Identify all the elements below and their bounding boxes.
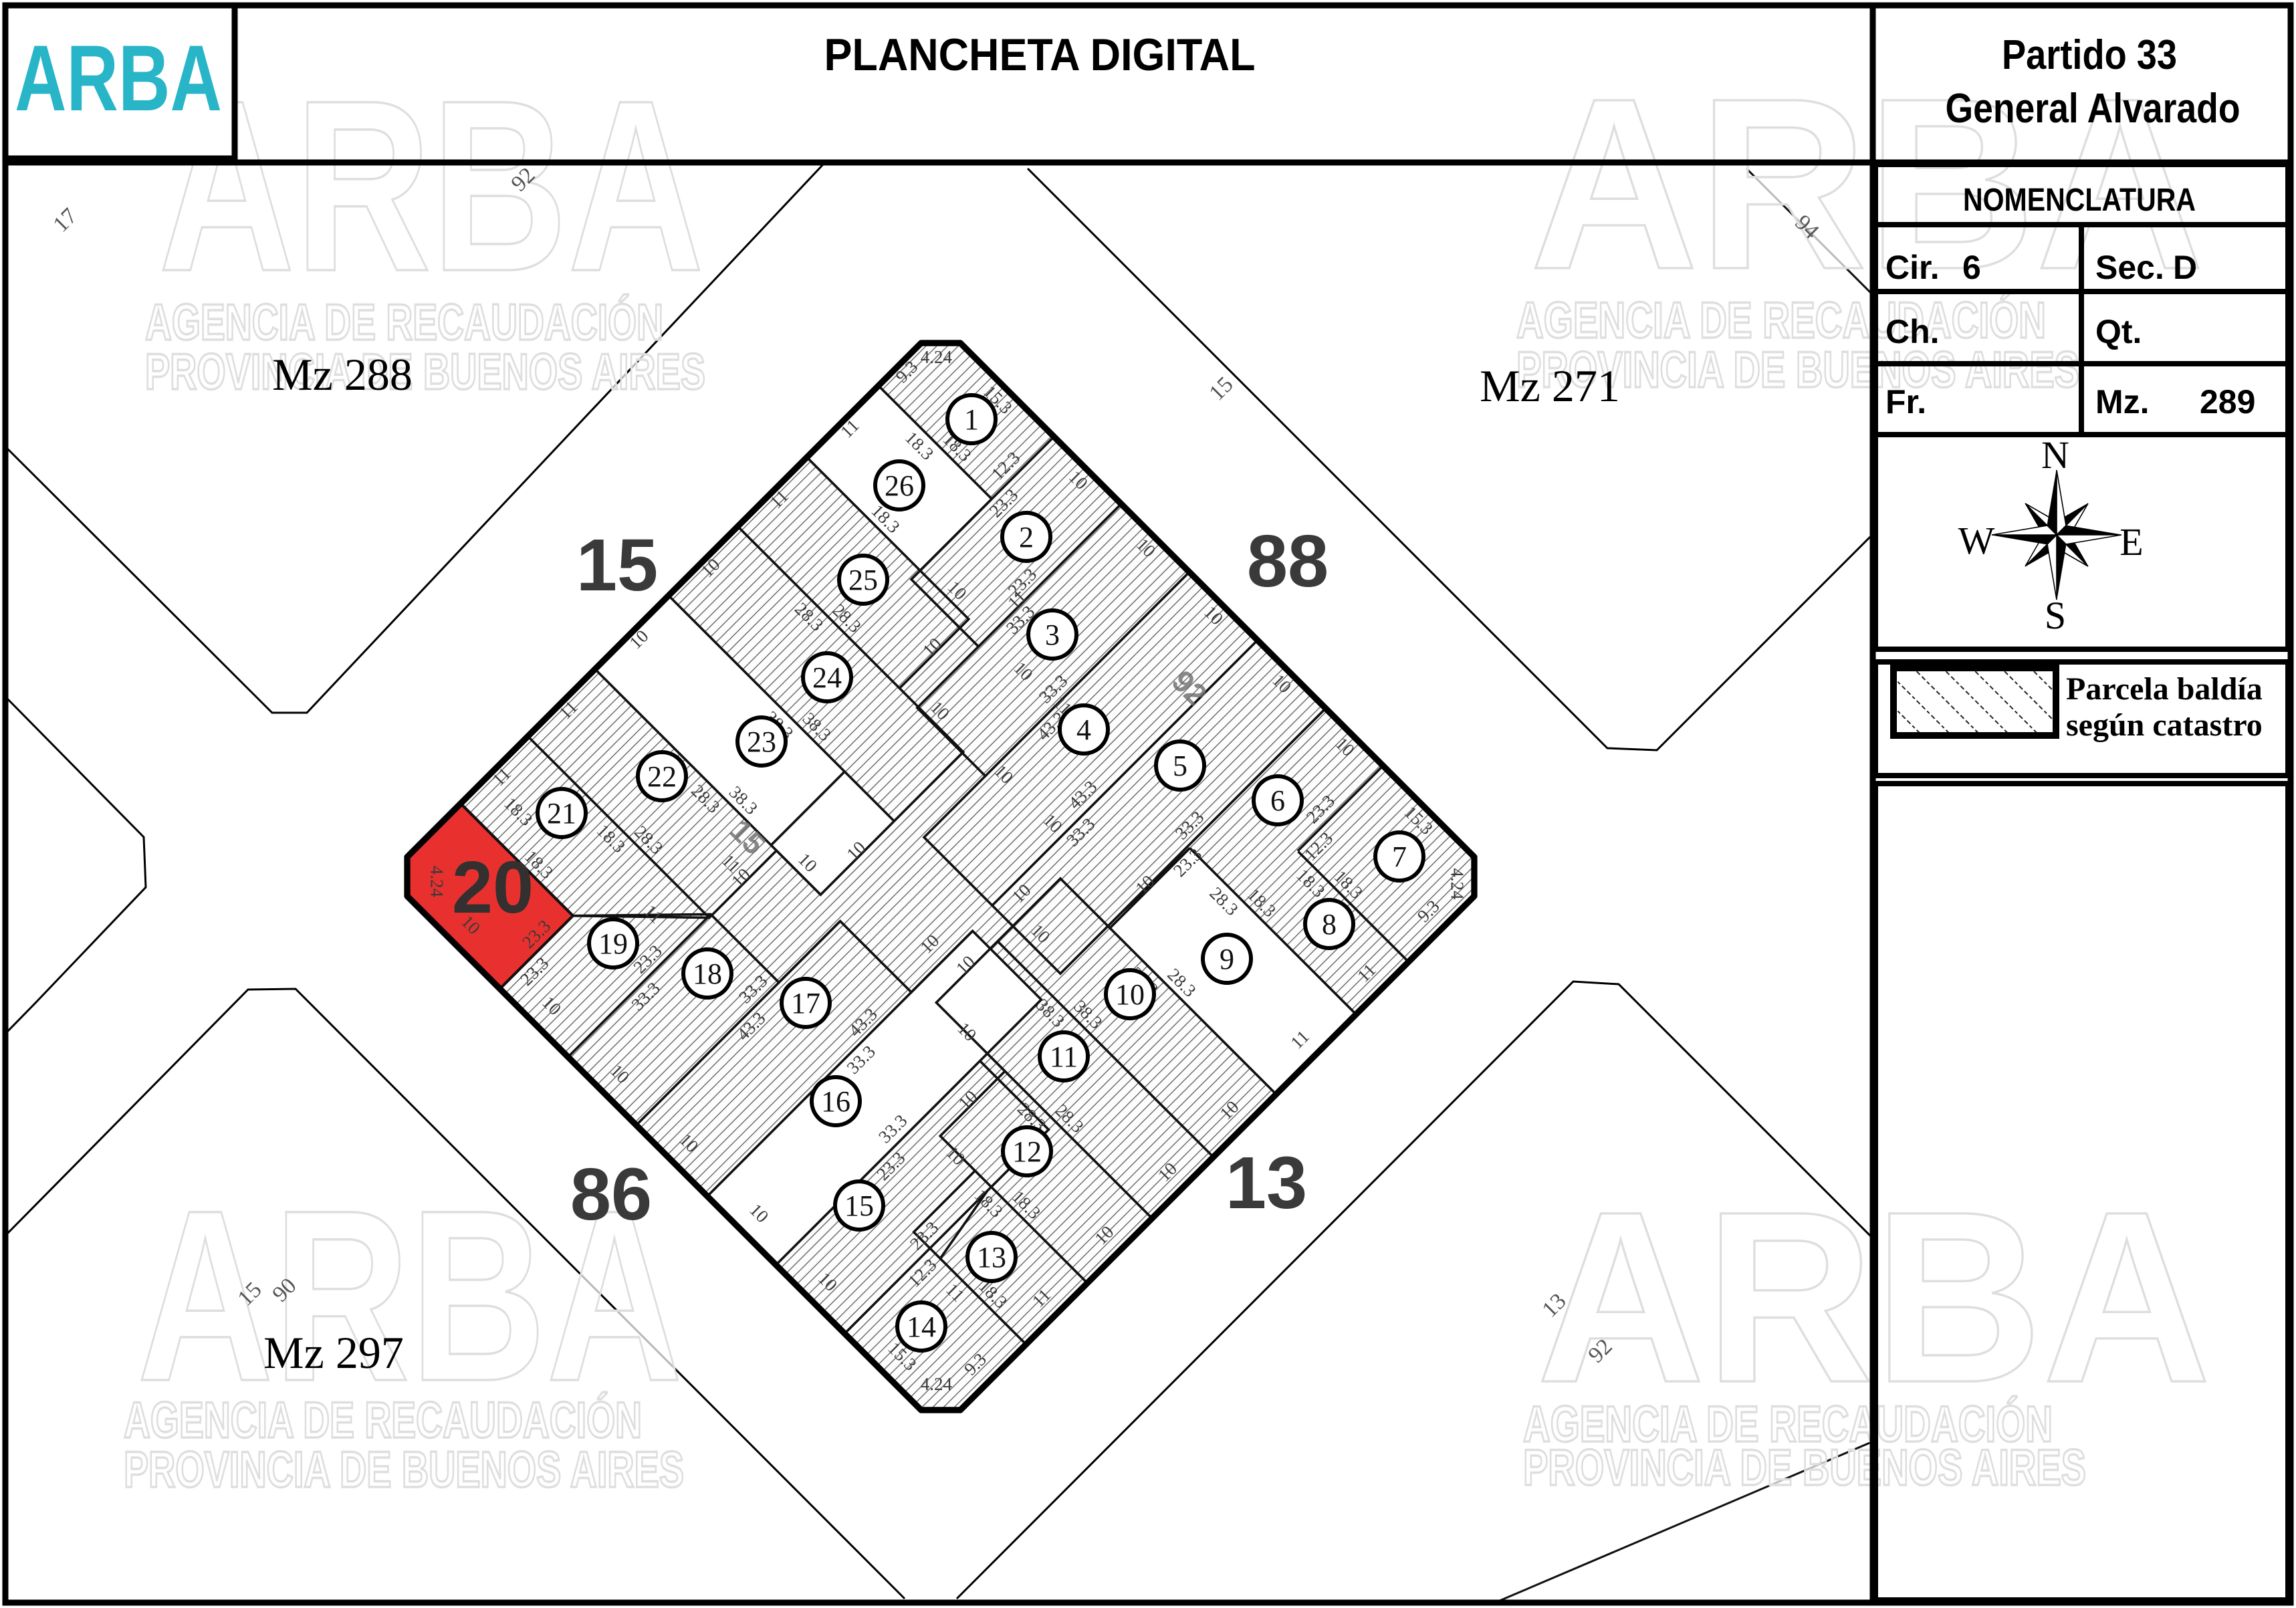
svg-text:3: 3: [1045, 618, 1060, 651]
svg-text:W: W: [1958, 519, 1995, 562]
svg-text:Parcela baldía: Parcela baldía: [2066, 671, 2263, 707]
svg-text:Mz.: Mz.: [2095, 383, 2150, 421]
svg-text:25: 25: [848, 564, 878, 596]
svg-text:4.24: 4.24: [921, 347, 953, 367]
svg-text:11: 11: [1050, 1040, 1078, 1073]
svg-text:Qt.: Qt.: [2095, 313, 2142, 350]
svg-text:20: 20: [452, 846, 534, 929]
svg-text:5: 5: [1173, 750, 1187, 782]
svg-text:PROVINCIA DE BUENOS AIRES: PROVINCIA DE BUENOS AIRES: [145, 344, 705, 400]
svg-text:23: 23: [747, 725, 776, 758]
svg-text:AGENCIA DE RECAUDACIÓN: AGENCIA DE RECAUDACIÓN: [124, 1392, 642, 1449]
svg-text:General Alvarado: General Alvarado: [1946, 86, 2241, 132]
svg-text:Mz 288: Mz 288: [272, 349, 413, 400]
svg-text:4: 4: [1076, 713, 1091, 746]
svg-text:86: 86: [570, 1153, 652, 1236]
svg-text:7: 7: [1392, 840, 1407, 873]
svg-text:PLANCHETA DIGITAL: PLANCHETA DIGITAL: [824, 29, 1256, 80]
svg-text:12: 12: [1012, 1135, 1042, 1168]
svg-text:4.24: 4.24: [921, 1374, 953, 1394]
svg-text:PROVINCIA DE BUENOS AIRES: PROVINCIA DE BUENOS AIRES: [124, 1442, 684, 1498]
svg-text:22: 22: [647, 760, 677, 793]
svg-text:6: 6: [1270, 784, 1285, 817]
svg-text:4.24: 4.24: [1447, 868, 1467, 900]
svg-text:10: 10: [1115, 978, 1145, 1011]
svg-text:Fr.: Fr.: [1885, 383, 1926, 421]
svg-text:4.24: 4.24: [427, 866, 447, 898]
svg-text:ARBA: ARBA: [158, 50, 704, 322]
svg-text:PROVINCIA DE BUENOS AIRES: PROVINCIA DE BUENOS AIRES: [1523, 1440, 2086, 1496]
svg-text:2: 2: [1019, 521, 1034, 554]
svg-text:13: 13: [977, 1241, 1006, 1274]
svg-text:Sec.: Sec.: [2095, 249, 2164, 286]
svg-text:17: 17: [791, 987, 820, 1020]
svg-text:Partido 33: Partido 33: [2002, 32, 2177, 78]
svg-text:E: E: [2119, 520, 2143, 564]
svg-text:21: 21: [547, 797, 576, 830]
svg-text:8: 8: [1322, 908, 1337, 941]
svg-text:N: N: [2041, 433, 2069, 477]
svg-text:24: 24: [812, 661, 842, 694]
svg-text:Mz 297: Mz 297: [263, 1327, 404, 1378]
svg-text:Mz 271: Mz 271: [1480, 360, 1620, 411]
svg-text:15: 15: [576, 524, 658, 606]
svg-text:88: 88: [1247, 520, 1329, 602]
svg-text:S: S: [2045, 594, 2066, 637]
svg-text:19: 19: [598, 927, 628, 960]
svg-text:16: 16: [821, 1085, 850, 1118]
svg-text:Ch.: Ch.: [1885, 313, 1940, 350]
svg-text:según catastro: según catastro: [2066, 707, 2263, 743]
svg-text:18: 18: [693, 957, 722, 990]
svg-text:NOMENCLATURA: NOMENCLATURA: [1963, 183, 2196, 218]
svg-text:D: D: [2173, 249, 2197, 286]
svg-text:Cir.: Cir.: [1885, 249, 1940, 286]
svg-text:14: 14: [907, 1310, 936, 1343]
svg-text:26: 26: [885, 469, 914, 502]
svg-text:289: 289: [2200, 383, 2255, 421]
svg-text:6: 6: [1962, 249, 1981, 286]
svg-text:1: 1: [964, 403, 979, 436]
svg-text:ARBA: ARBA: [15, 25, 222, 130]
svg-text:13: 13: [1226, 1142, 1307, 1224]
svg-text:15: 15: [844, 1189, 874, 1222]
svg-text:AGENCIA DE RECAUDACIÓN: AGENCIA DE RECAUDACIÓN: [145, 294, 663, 351]
svg-text:AGENCIA DE RECAUDACIÓN: AGENCIA DE RECAUDACIÓN: [1516, 292, 2046, 349]
svg-text:9: 9: [1220, 943, 1234, 975]
